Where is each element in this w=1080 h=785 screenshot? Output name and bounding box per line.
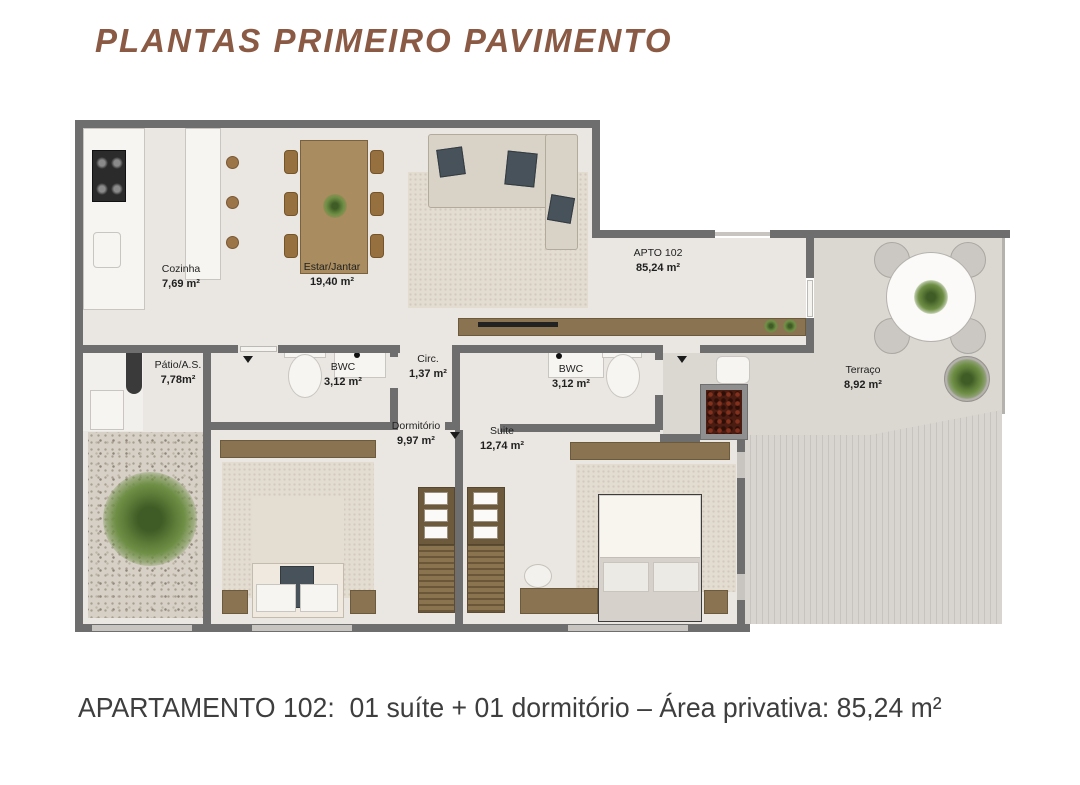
wall-mid-d: [700, 345, 814, 353]
fern-plant-icon: [103, 472, 197, 566]
wall-bedroom-divider: [455, 430, 463, 624]
room-name: Estar/Jantar: [282, 260, 382, 275]
suite-bottom-window: [568, 625, 688, 631]
bar-stool: [226, 156, 239, 169]
room-area: 7,69 m²: [141, 277, 221, 293]
wall-right-upper: [592, 120, 600, 238]
dining-chair: [284, 150, 298, 174]
bed-pillow: [603, 562, 649, 592]
apartment-area: 85,24 m²: [608, 261, 708, 277]
terrace-door-leaf: [807, 280, 813, 317]
wall-terrace-top-left: [592, 230, 715, 238]
room-area: 12,74 m²: [452, 439, 552, 455]
dining-chair: [370, 150, 384, 174]
bed-pillow: [653, 562, 699, 592]
apartment-label: APTO 102 85,24 m²: [608, 246, 708, 277]
table-plant-icon: [323, 194, 347, 218]
room-name: Pátio/A.S.: [132, 358, 224, 373]
bed-pillow: [300, 584, 338, 612]
suite-desk: [520, 588, 598, 614]
apartment-number: APTO 102: [608, 246, 708, 261]
room-name: Dormitório: [366, 419, 466, 434]
apartment-caption: APARTAMENTO 102: 01 suíte + 01 dormitóri…: [78, 692, 942, 724]
room-area: 7,78m²: [132, 373, 224, 389]
bedroom-headboard-shelf: [220, 440, 376, 458]
room-label-bwc-2: BWC 3,12 m²: [531, 362, 611, 393]
wardrobe-box: [473, 509, 498, 522]
wardrobe-box: [424, 509, 448, 522]
wardrobe-hanging: [467, 545, 505, 613]
wall-top: [75, 120, 600, 128]
wall-mid-c: [452, 345, 660, 353]
dining-chair: [284, 192, 298, 216]
room-label-suite: Suite 12,74 m²: [452, 424, 552, 455]
bbq-grill-icon: [706, 390, 742, 434]
terrace-gate: [715, 232, 770, 236]
room-area: 3,12 m²: [531, 377, 611, 393]
potted-plant-icon: [947, 359, 987, 399]
table-plant-icon: [914, 280, 948, 314]
door-hinge-icon: [243, 356, 253, 363]
bed-pillow: [256, 584, 296, 612]
wardrobe-box: [424, 526, 448, 539]
wardrobe-box: [424, 492, 448, 505]
room-label-patio: Pátio/A.S. 7,78m²: [132, 358, 224, 389]
wall-left: [75, 120, 83, 632]
sideboard-plant-icon: [764, 319, 778, 333]
sideboard: [458, 318, 806, 336]
gourmet-sink-icon: [716, 356, 750, 384]
wall-mid-a: [83, 345, 238, 353]
room-name: BWC: [303, 360, 383, 375]
terrace-edge-line: [1002, 238, 1005, 414]
suite-duvet: [600, 496, 700, 558]
room-label-dormitorio: Dormitório 9,97 m²: [366, 419, 466, 450]
bedroom-duvet: [252, 496, 344, 564]
sofa-chaise: [545, 134, 578, 250]
wall-nook-bottom: [660, 434, 700, 442]
sideboard-plant-icon: [783, 319, 797, 333]
dining-chair: [370, 234, 384, 258]
floor-plan-page: PLANTAS PRIMEIRO PAVIMENTO: [0, 0, 1080, 785]
room-area: 19,40 m²: [282, 275, 382, 291]
suite-headboard-shelf: [570, 442, 730, 460]
room-name: BWC: [531, 362, 611, 377]
bar-stool: [226, 236, 239, 249]
cooktop-icon: [92, 150, 126, 202]
nightstand: [222, 590, 248, 614]
room-name: Circ.: [388, 352, 468, 367]
dining-chair: [284, 234, 298, 258]
room-area: 3,12 m²: [303, 375, 383, 391]
tv: [478, 322, 558, 327]
kitchen-sink-icon: [93, 232, 121, 268]
page-title: PLANTAS PRIMEIRO PAVIMENTO: [95, 22, 673, 60]
laundry-sink-icon: [90, 390, 124, 430]
room-label-terraco: Terraço 8,92 m²: [823, 363, 903, 394]
sofa-pillow: [547, 194, 575, 224]
room-name: Cozinha: [141, 262, 221, 277]
wall-terrace-door-jamb-top: [806, 238, 814, 278]
suite-window: [737, 452, 745, 478]
toilet-icon: [606, 354, 640, 398]
room-area: 9,97 m²: [366, 434, 466, 450]
sofa-pillow: [504, 151, 537, 188]
wardrobe-hanging: [418, 545, 455, 613]
nightstand: [704, 590, 728, 614]
wardrobe-box: [473, 526, 498, 539]
room-label-circ: Circ. 1,37 m²: [388, 352, 468, 383]
room-label-cozinha: Cozinha 7,69 m²: [141, 262, 221, 293]
bedroom-window: [252, 625, 352, 631]
wardrobe-box: [473, 492, 498, 505]
room-name: Terraço: [823, 363, 903, 378]
desk-pouf: [524, 564, 552, 588]
room-area: 8,92 m²: [823, 378, 903, 394]
room-label-bwc-1: BWC 3,12 m²: [303, 360, 383, 391]
dining-chair: [370, 192, 384, 216]
wall-bwc2-jamb: [655, 345, 663, 360]
patio-door-leaf: [240, 346, 277, 352]
faucet-dot: [556, 353, 562, 359]
bar-stool: [226, 196, 239, 209]
wall-terrace-top-right: [770, 230, 1010, 238]
room-name: Suite: [452, 424, 552, 439]
patio-window: [92, 625, 192, 631]
room-label-estar-jantar: Estar/Jantar 19,40 m²: [282, 260, 382, 291]
sofa-pillow: [436, 146, 466, 177]
kitchen-island: [185, 128, 221, 280]
nightstand: [350, 590, 376, 614]
wall-mid-b: [278, 345, 400, 353]
room-area: 1,37 m²: [388, 367, 468, 383]
door-hinge-icon: [677, 356, 687, 363]
suite-window: [737, 574, 745, 600]
